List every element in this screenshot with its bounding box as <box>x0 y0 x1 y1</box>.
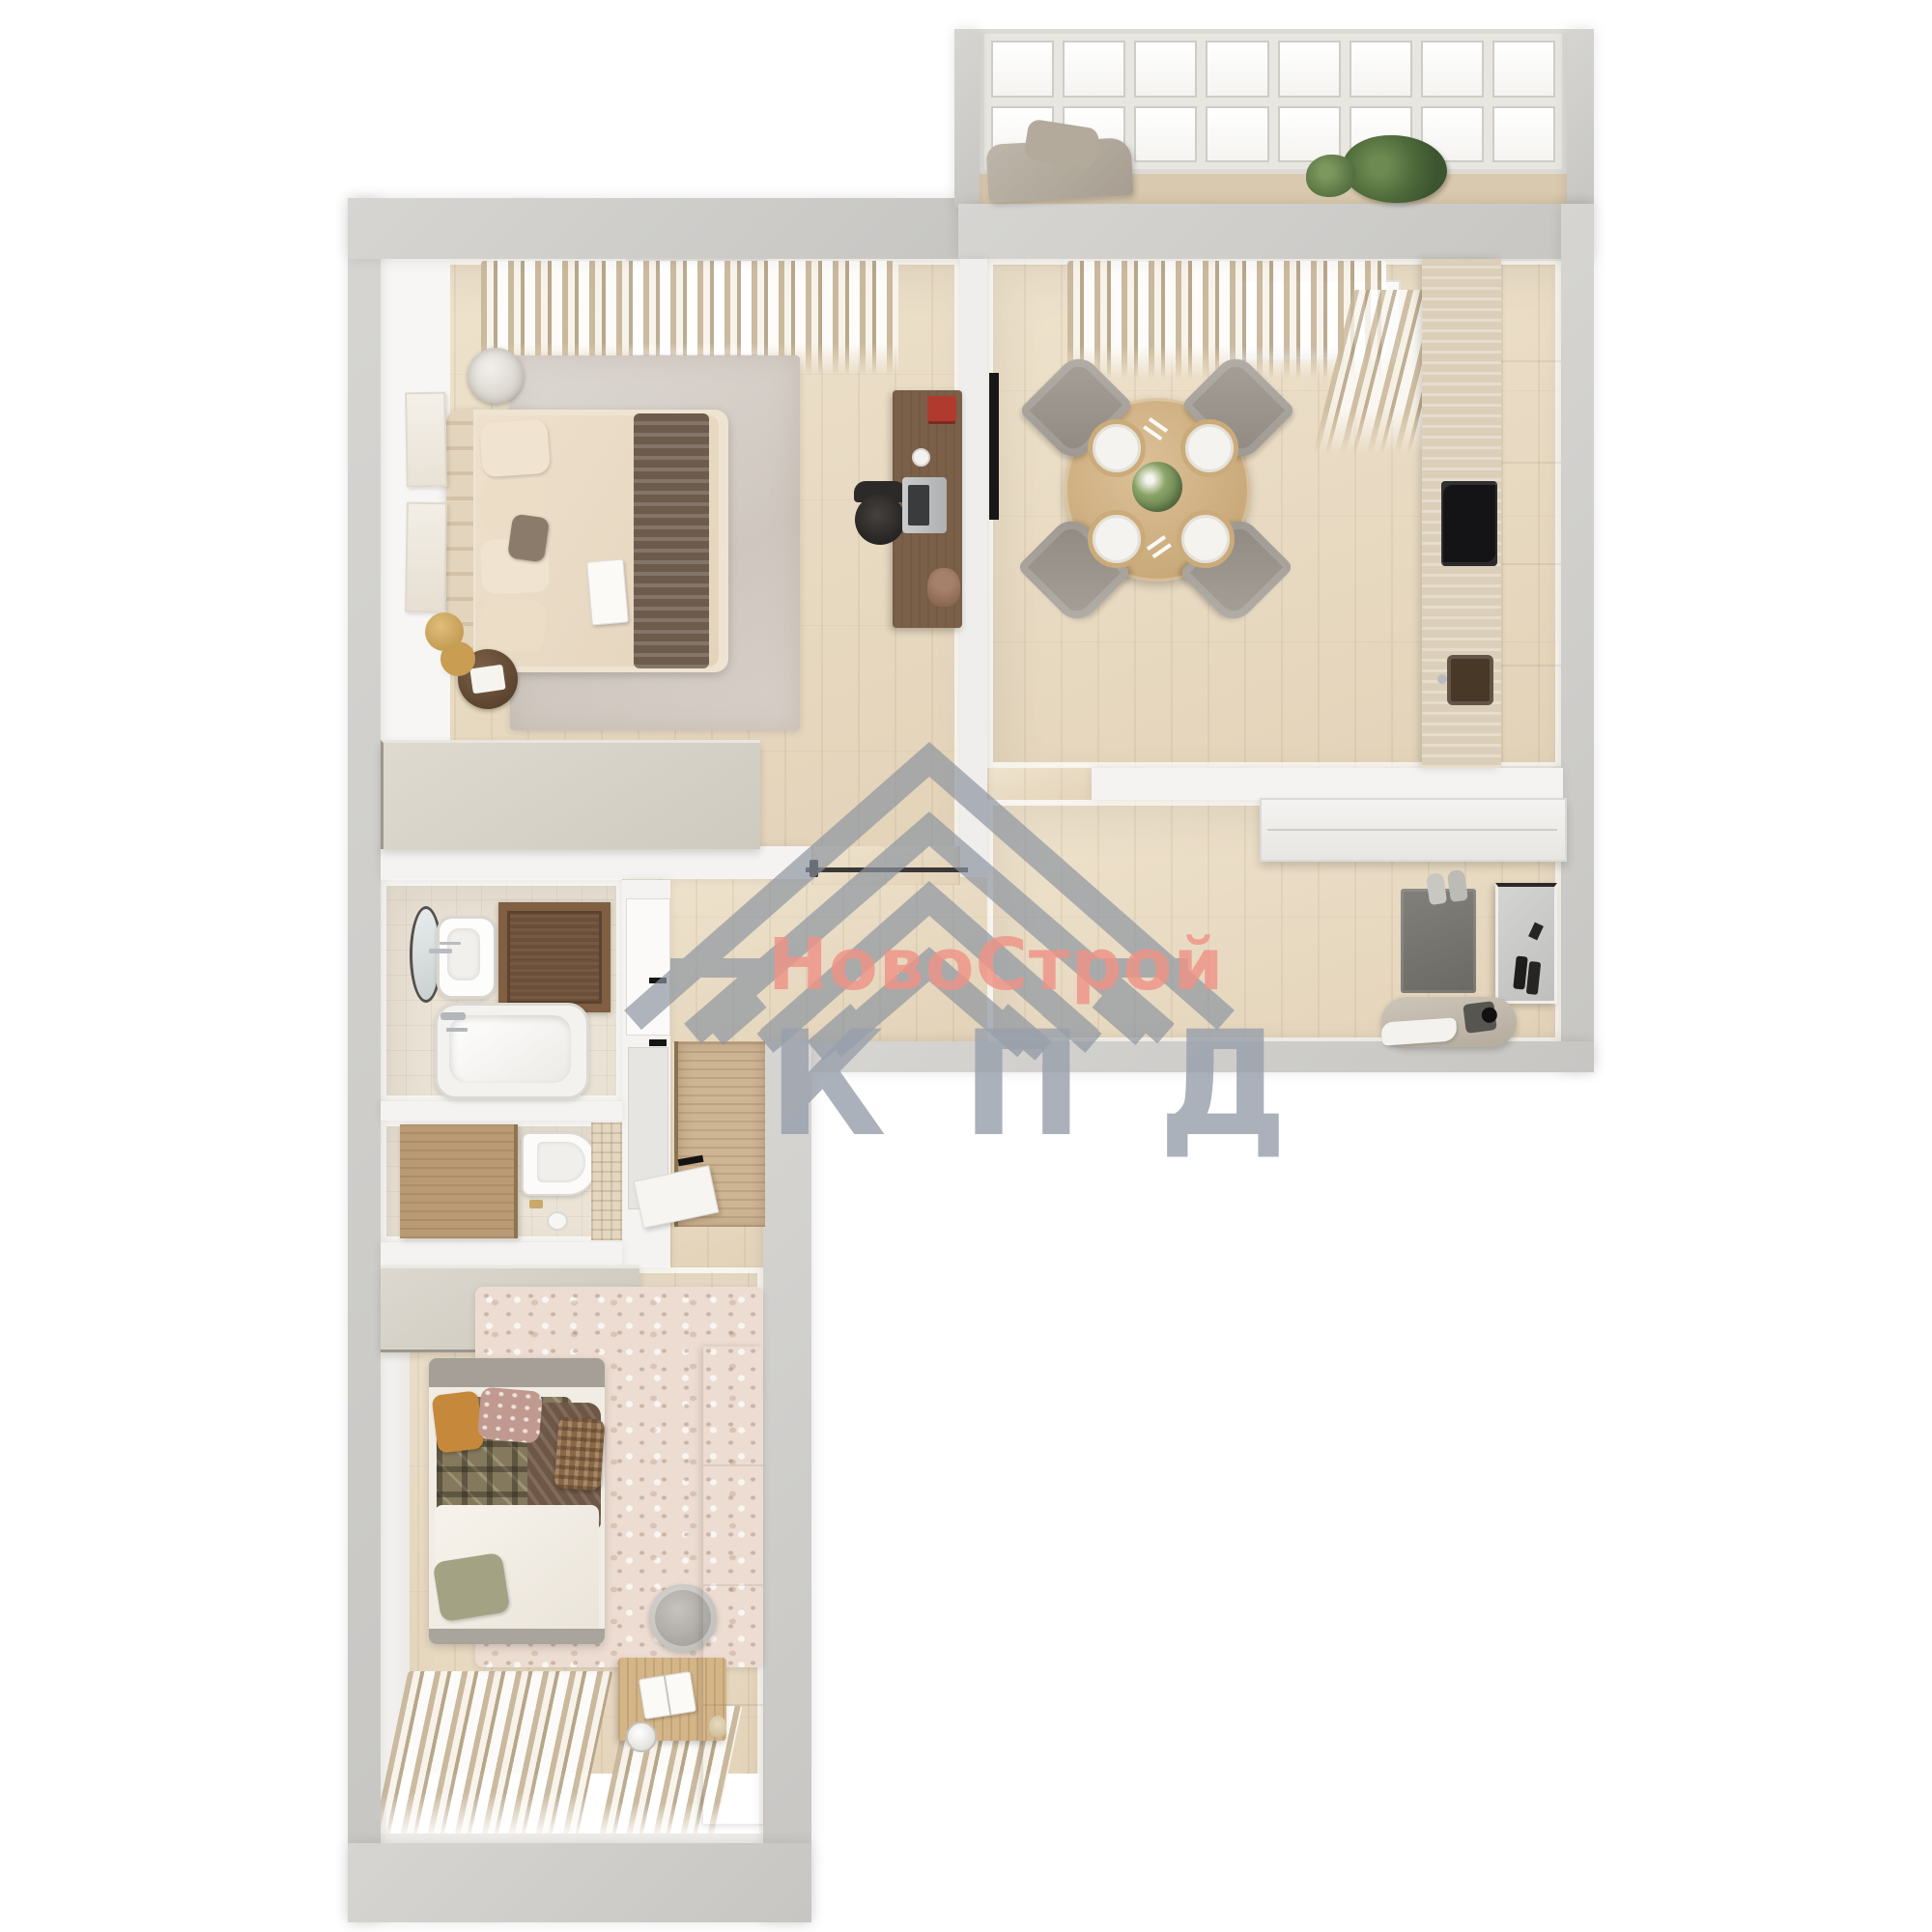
laptop <box>902 477 947 533</box>
mustard-pillow <box>432 1390 485 1453</box>
basin-bowl <box>447 928 480 980</box>
watermark-brand-abbr: КПД <box>768 1012 1363 1157</box>
book-spine <box>664 1675 672 1716</box>
desk-books-red <box>927 396 956 421</box>
wall-right-outer <box>1561 204 1594 1072</box>
watermark-brand-name: НовоСтрой <box>768 929 1224 1001</box>
wall-tv <box>989 373 999 520</box>
floral-pillow <box>477 1386 543 1443</box>
mirror-reflection-mark <box>1528 923 1544 941</box>
wc-wood-vanity <box>400 1124 518 1238</box>
place-setting-plate <box>1088 510 1146 568</box>
bed-pillow <box>479 597 547 653</box>
kitchen-faucet <box>1437 674 1447 684</box>
balcony-window-pane <box>1278 41 1341 98</box>
bed-runner-blanket <box>634 413 709 668</box>
washbasin <box>437 916 497 999</box>
wall-left-outer <box>348 198 381 1922</box>
bedroom-side-table-marble <box>468 348 524 404</box>
floor-mirror <box>1495 883 1557 1004</box>
balcony-window-pane <box>1134 41 1197 98</box>
kids-desk-lamp <box>626 1721 657 1752</box>
laptop-keyboard <box>908 485 929 526</box>
kids-bed-footboard <box>429 1629 605 1644</box>
desk-cup <box>912 448 930 467</box>
wall-art-frame <box>405 502 447 613</box>
bed-accent-cushion <box>507 514 550 563</box>
induction-cooktop <box>1441 481 1497 566</box>
wall-wc-kids-divider <box>381 1242 622 1267</box>
wall-top-bedroom <box>348 198 958 259</box>
kitchen-sink <box>1447 655 1493 705</box>
flower-centerpiece <box>1132 462 1182 512</box>
kids-wall-unit <box>703 1347 763 1826</box>
place-setting-plate <box>1088 419 1146 477</box>
balcony-window-pane <box>1350 41 1412 98</box>
bench-bag <box>1463 1001 1496 1034</box>
bed-pillow <box>479 419 551 478</box>
floor-lamp-gold-discs <box>425 612 464 651</box>
bathtub-faucet <box>440 1012 466 1020</box>
balcony-window-pane <box>1063 41 1125 98</box>
balcony-window-pane <box>991 41 1054 98</box>
toilet-paper-roll <box>547 1211 568 1231</box>
kids-open-book <box>639 1671 696 1719</box>
balcony-window-pane <box>1492 106 1555 163</box>
wall-balcony-right <box>1567 29 1594 208</box>
balcony-plant <box>1343 135 1447 203</box>
wall-balcony-left <box>954 29 980 208</box>
toilet-seat <box>537 1142 585 1182</box>
place-setting-plate <box>1180 419 1238 477</box>
kids-bed-headboard <box>429 1358 605 1387</box>
balcony-window-pane <box>1492 41 1555 98</box>
basin-faucet <box>429 949 452 953</box>
open-book-on-bed <box>586 558 629 625</box>
kids-bed <box>429 1358 605 1644</box>
wicker-basket <box>554 1416 605 1491</box>
balcony-window-pane <box>1206 106 1268 163</box>
sage-pillow <box>433 1552 511 1623</box>
place-setting-plate <box>1177 510 1235 568</box>
wall-art-frame <box>405 392 447 488</box>
entry-door-mat <box>1401 889 1476 993</box>
wall-bottom-outer <box>348 1843 811 1922</box>
teddy-bear <box>927 568 960 607</box>
gold-flush-button <box>529 1200 543 1208</box>
bedroom-desk-chair <box>852 481 908 554</box>
balcony-window-pane <box>1134 106 1197 163</box>
bathtub-basin <box>449 1015 571 1083</box>
wall-right-bottom-section <box>763 1041 811 1922</box>
balcony-window-pane <box>1421 41 1484 98</box>
nightstand-papers <box>469 665 505 694</box>
double-bed <box>446 410 728 672</box>
wall-under-balcony <box>958 204 1594 259</box>
kids-curtain-left <box>373 1671 613 1839</box>
balcony-window-pane <box>1206 41 1268 98</box>
floor-plan-canvas: НовоСтрой КПД <box>0 0 1932 1932</box>
chair-seat <box>855 495 905 545</box>
kitchen-cabinet-run <box>1501 259 1561 768</box>
dried-flowers <box>709 1716 726 1737</box>
